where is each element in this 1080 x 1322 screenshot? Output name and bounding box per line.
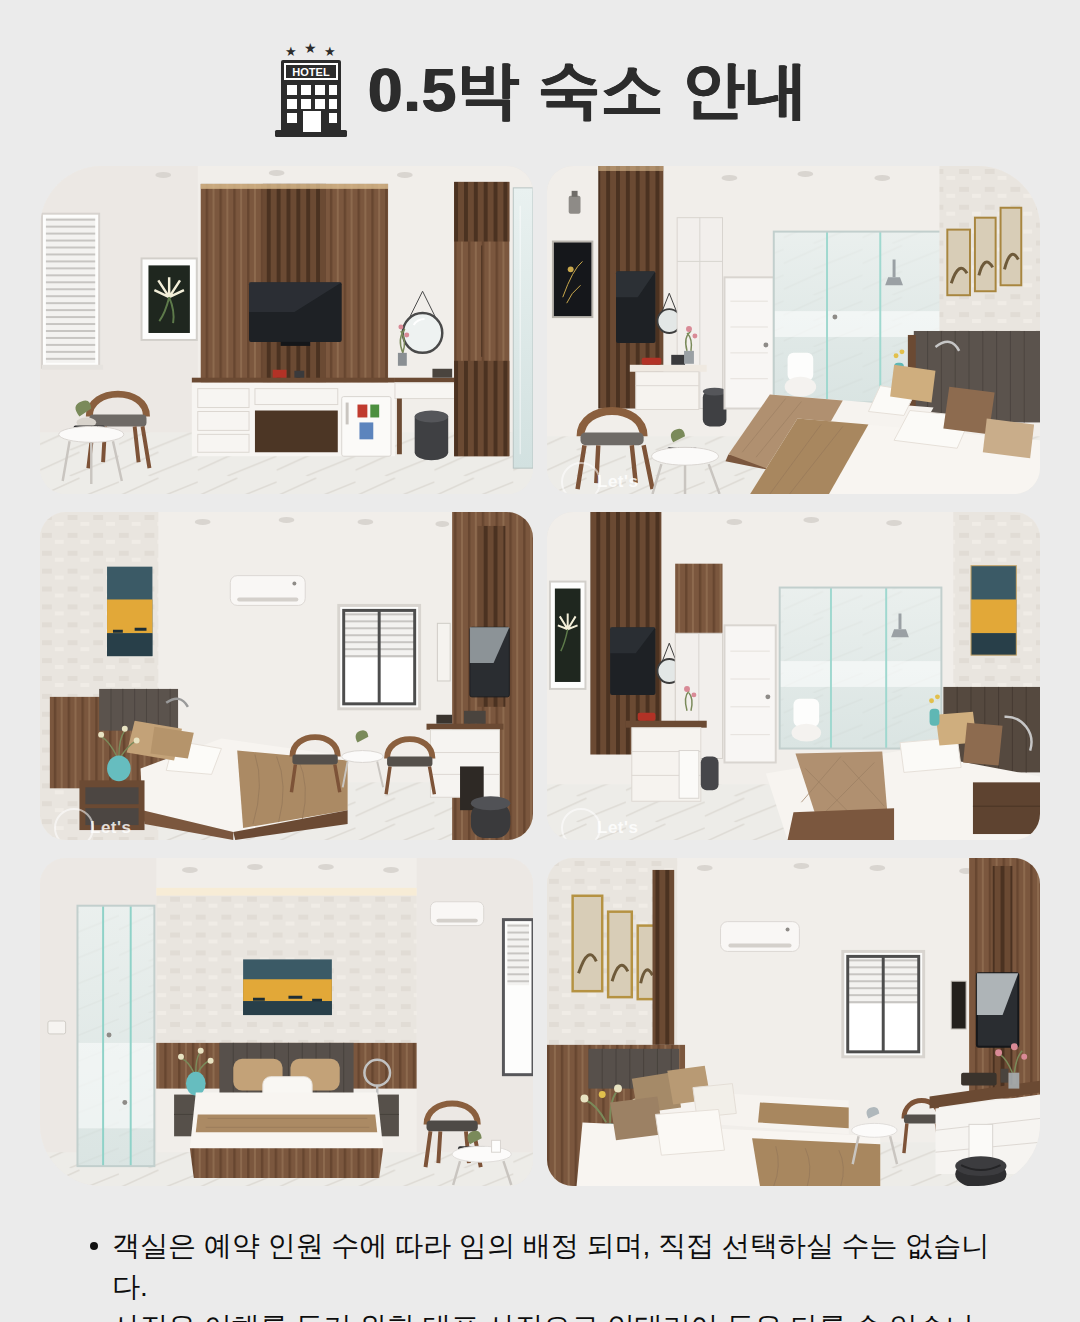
glass-shower (77, 906, 154, 1166)
tv (470, 627, 509, 697)
abstract-artwork (553, 242, 592, 318)
sunset-artwork (243, 959, 332, 1015)
wood-slat-column (653, 870, 675, 1045)
note-room-assignment: 객실은 예약 인원 수에 따라 임의 배정 되며, 직접 선택하실 수는 없습니… (90, 1226, 990, 1307)
trash-bin (701, 757, 719, 791)
page: ★ ★ ★ HOTEL 0.5박 숙소 안내 (0, 0, 1080, 1322)
air-conditioner (430, 902, 483, 926)
room-photo-2: Let's (547, 166, 1040, 494)
sunset-artwork (971, 566, 1016, 655)
room-photo-grid: Let's (40, 166, 1040, 1186)
nightstand (973, 782, 1040, 834)
photo-watermark: Let's (597, 818, 639, 838)
photo-watermark: Let's (90, 818, 132, 838)
flower-artwork (142, 258, 197, 340)
note-text: 객실은 예약 인원 수에 따라 임의 배정 되며, 직접 선택하실 수는 없습니… (112, 1226, 990, 1307)
header: ★ ★ ★ HOTEL 0.5박 숙소 안내 (0, 0, 1080, 138)
sunset-artwork (107, 567, 152, 656)
light-switch (48, 1021, 66, 1034)
mini-fridge (342, 397, 391, 457)
air-conditioner (230, 576, 305, 606)
trash-bin (703, 388, 727, 427)
toilet (792, 699, 822, 742)
window (339, 605, 420, 708)
star-icon: ★ (285, 44, 297, 59)
tv (610, 627, 655, 695)
room-photo-3: Let's (40, 512, 533, 840)
mini-fridge (679, 751, 699, 799)
window (503, 920, 533, 1075)
flower-artwork (550, 582, 585, 689)
window-blinds (42, 214, 103, 370)
building-door (303, 111, 321, 132)
glass-shower (780, 588, 942, 749)
bullet-icon (90, 1242, 98, 1250)
tv (249, 282, 342, 346)
room-photo-4: Let's (547, 512, 1040, 840)
hotel-building-icon: ★ ★ ★ HOTEL (272, 43, 350, 137)
photo-watermark: Let's (597, 472, 639, 492)
room-photo-1 (40, 166, 533, 494)
notes: 객실은 예약 인원 수에 따라 임의 배정 되며, 직접 선택하실 수는 없습니… (90, 1226, 990, 1322)
trash-bin (471, 796, 510, 838)
star-icon: ★ (324, 44, 336, 59)
bathroom-door (724, 277, 773, 408)
tv (977, 973, 1018, 1047)
note-text: 사진은 이해를 돕기 위한 대표 사진으로 인테리어 등은 다를 수 있습니다. (112, 1307, 990, 1322)
air-conditioner (721, 922, 800, 952)
room-photo-6 (547, 858, 1040, 1186)
glass-door (513, 188, 533, 468)
small-artwork (437, 623, 450, 681)
hotel-sign-label: HOTEL (292, 66, 330, 78)
room-photo-5 (40, 858, 533, 1186)
toilet (785, 353, 817, 397)
bathroom-door (724, 625, 775, 762)
page-title: 0.5박 숙소 안내 (368, 48, 809, 132)
window (843, 951, 924, 1056)
star-icon: ★ (304, 43, 317, 56)
cove-light (156, 888, 416, 896)
small-artwork (951, 981, 966, 1029)
wardrobe (454, 182, 509, 456)
trash-bin (955, 1156, 1006, 1186)
note-photo-disclaimer: 사진은 이해를 돕기 위한 대표 사진으로 인테리어 등은 다를 수 있습니다. (90, 1307, 990, 1322)
tv (616, 271, 655, 343)
desk (427, 711, 504, 810)
stool (415, 411, 449, 461)
